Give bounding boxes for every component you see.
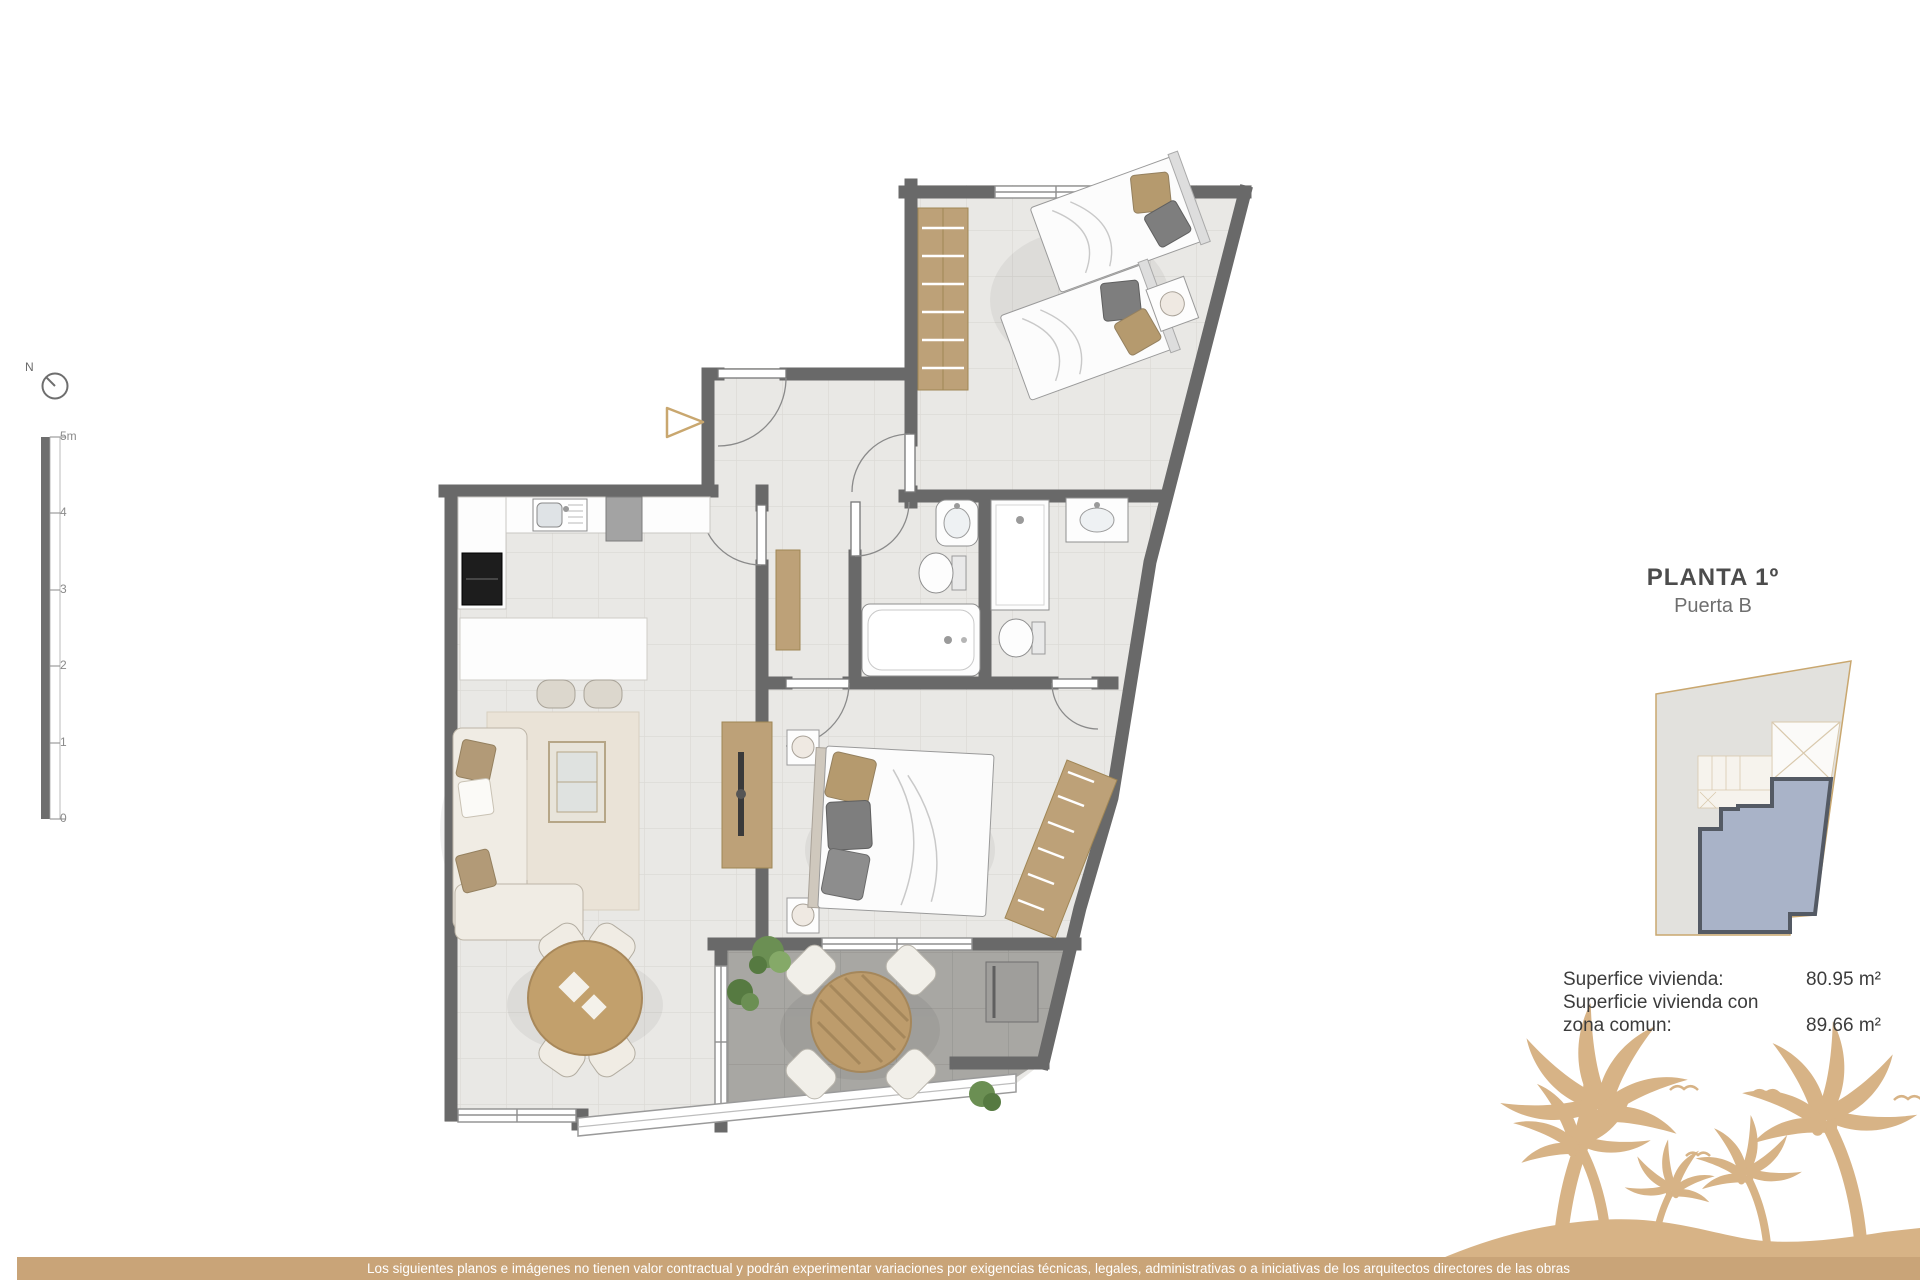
scale-tick-label: 5m bbox=[60, 429, 77, 443]
coffee-table bbox=[549, 742, 605, 822]
fridge bbox=[606, 497, 642, 541]
page-title: PLANTA 1º bbox=[1593, 564, 1833, 592]
kitchen-sink bbox=[533, 499, 587, 531]
page-subtitle: Puerta B bbox=[1593, 595, 1833, 618]
sink bbox=[936, 500, 978, 546]
scale-tick-label: 1 bbox=[60, 735, 67, 749]
area-label: zona comun: bbox=[1563, 1014, 1672, 1037]
kitchen-island bbox=[460, 618, 647, 680]
window-main-bedroom bbox=[822, 938, 972, 950]
shower bbox=[991, 500, 1049, 610]
area-label: Superficie vivienda con bbox=[1563, 991, 1758, 1014]
disclaimer-text: Los siguientes planos e imágenes no tien… bbox=[367, 1261, 1570, 1276]
double-bed bbox=[808, 746, 994, 917]
stair-core bbox=[1772, 722, 1840, 780]
area-label: Superfice vivienda: bbox=[1563, 968, 1724, 991]
toilet bbox=[999, 619, 1045, 657]
floorplan-page: N 5m 4 3 2 1 0 PLANTA 1º Puerta B Superf… bbox=[0, 0, 1920, 1280]
north-label: N bbox=[25, 360, 34, 374]
surface-area-panel: Superfice vivienda: 80.95 m² Superficie … bbox=[1563, 968, 1881, 1037]
north-compass-icon bbox=[43, 374, 68, 399]
hall-console bbox=[776, 550, 800, 650]
toilet bbox=[919, 553, 966, 593]
stool bbox=[537, 680, 575, 708]
apartment-plan bbox=[440, 151, 1252, 1136]
main-bedroom bbox=[787, 730, 1117, 938]
stool bbox=[584, 680, 622, 708]
wardrobe-twin-bedroom bbox=[918, 208, 968, 390]
window-living-room bbox=[458, 1109, 576, 1122]
terrace-storage-unit bbox=[986, 962, 1038, 1022]
sink bbox=[1066, 498, 1128, 542]
area-row: zona comun: 89.66 m² bbox=[1563, 1014, 1881, 1037]
building-locator-map bbox=[1656, 661, 1851, 935]
plan-title-block: PLANTA 1º Puerta B bbox=[1593, 564, 1833, 618]
entrance-marker-icon bbox=[667, 408, 703, 437]
scale-bar bbox=[41, 437, 66, 819]
palm-beach-graphic bbox=[1438, 1002, 1920, 1280]
common-zone bbox=[1698, 756, 1772, 808]
area-row: Superficie vivienda con bbox=[1563, 991, 1881, 1014]
tv-sideboard bbox=[722, 722, 772, 868]
scale-tick-label: 4 bbox=[60, 505, 67, 519]
dining-table bbox=[528, 918, 642, 1081]
window-terrace-door bbox=[715, 966, 727, 1118]
footer-disclaimer-bar: Los siguientes planos e imágenes no tien… bbox=[17, 1257, 1920, 1280]
floorplan-drawing bbox=[0, 0, 1920, 1280]
bathtub bbox=[862, 604, 980, 676]
area-value: 80.95 m² bbox=[1806, 968, 1881, 991]
scale-tick-label: 3 bbox=[60, 582, 67, 596]
nightstand bbox=[787, 730, 819, 765]
area-row: Superfice vivienda: 80.95 m² bbox=[1563, 968, 1881, 991]
scale-tick-label: 0 bbox=[60, 811, 67, 825]
area-value: 89.66 m² bbox=[1806, 1014, 1881, 1037]
scale-tick-label: 2 bbox=[60, 658, 67, 672]
cooktop bbox=[462, 553, 502, 605]
